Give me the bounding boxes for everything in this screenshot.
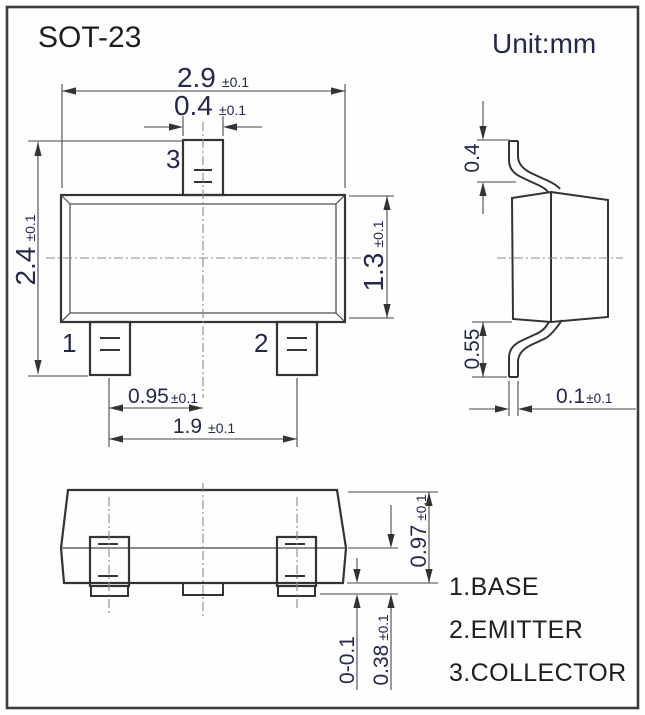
top-view: 1 2 3 2.9±0.1 0.4±0.1 2.4±0.1	[10, 62, 394, 447]
side-body	[512, 192, 608, 322]
svg-text:0.38±0.1: 0.38±0.1	[370, 614, 393, 685]
dim-lead-length-value: 0.38	[370, 645, 393, 686]
dim-lead-length-tol: ±0.1	[376, 614, 391, 640]
top-lead	[509, 141, 560, 192]
dim-pin-half-pitch-value: 0.95	[128, 385, 169, 408]
dim-body-width-tol: ±0.1	[222, 74, 249, 90]
dim-lead-top: 0.4	[461, 101, 516, 214]
svg-text:0.95±0.1: 0.95±0.1	[128, 385, 198, 408]
legend-pin2: 2.EMITTER	[449, 616, 583, 644]
dim-height-tol: ±0.1	[414, 494, 429, 520]
pin1-number: 1	[62, 328, 76, 358]
pin1-pad	[90, 322, 130, 375]
pin2-pad	[277, 322, 317, 375]
dim-body-length-value: 1.3	[358, 253, 389, 292]
pin2-number: 2	[254, 328, 268, 358]
dim-overall-length-value: 2.4	[10, 247, 41, 286]
svg-text:2.9±0.1: 2.9±0.1	[177, 62, 249, 93]
front-view: 0.97±0.1 0-0.1 0.38±0.1	[61, 483, 438, 690]
pin3-number: 3	[166, 144, 180, 174]
page-title: SOT-23	[38, 21, 141, 54]
dim-lead-bottom: 0.55	[461, 322, 512, 377]
dim-standoff-value: 0-0.1	[336, 636, 359, 684]
page-border	[7, 7, 638, 708]
legend-pin3: 3.COLLECTOR	[449, 659, 627, 687]
svg-text:1.9±0.1: 1.9±0.1	[173, 415, 236, 438]
dim-overall-length-tol: ±0.1	[22, 214, 38, 241]
dim-pin-pitch-group: 0.95±0.1 1.9±0.1	[109, 378, 297, 447]
dim-pin-pitch-value: 1.9	[173, 415, 202, 438]
dim-overall-length: 2.4±0.1	[10, 141, 183, 376]
svg-text:0.97±0.1: 0.97±0.1	[406, 494, 431, 567]
pin-legend: 1.BASE 2.EMITTER 3.COLLECTOR	[449, 573, 627, 687]
svg-text:1.3±0.1: 1.3±0.1	[358, 220, 389, 291]
side-view: 0.4 0.55 0.1±0.1	[461, 101, 636, 416]
package-outline-drawing: SOT-23 Unit:mm 1 2 3 2.9±0	[0, 0, 645, 715]
dim-pin-half-pitch-tol: ±0.1	[171, 390, 198, 406]
dim-body-length-tol: ±0.1	[370, 220, 386, 247]
dim-height-value: 0.97	[406, 525, 431, 568]
dim-pin3-width-value: 0.4	[174, 90, 213, 121]
dim-lead-tip: 0.1±0.1	[469, 381, 636, 416]
dim-pin-pitch-tol: ±0.1	[208, 420, 235, 436]
dim-lead-bottom-value: 0.55	[461, 329, 484, 370]
svg-text:0.4±0.1: 0.4±0.1	[174, 90, 246, 121]
bottom-lead	[509, 320, 562, 377]
datasheet-page: SOT-23 Unit:mm 1 2 3 2.9±0	[0, 0, 645, 715]
dim-lead-top-value: 0.4	[461, 143, 484, 173]
svg-text:0.1±0.1: 0.1±0.1	[556, 385, 612, 408]
dim-pin3-width-tol: ±0.1	[219, 102, 246, 118]
dim-lead-tip-tol: ±0.1	[586, 391, 612, 406]
dim-body-width-value: 2.9	[177, 62, 216, 93]
front-centerlines	[109, 483, 297, 618]
dim-lead-tip-value: 0.1	[556, 385, 585, 408]
svg-text:2.4±0.1: 2.4±0.1	[10, 214, 41, 285]
legend-pin1: 1.BASE	[449, 573, 539, 601]
dim-body-length: 1.3±0.1	[349, 196, 394, 318]
unit-label: Unit:mm	[492, 28, 596, 59]
